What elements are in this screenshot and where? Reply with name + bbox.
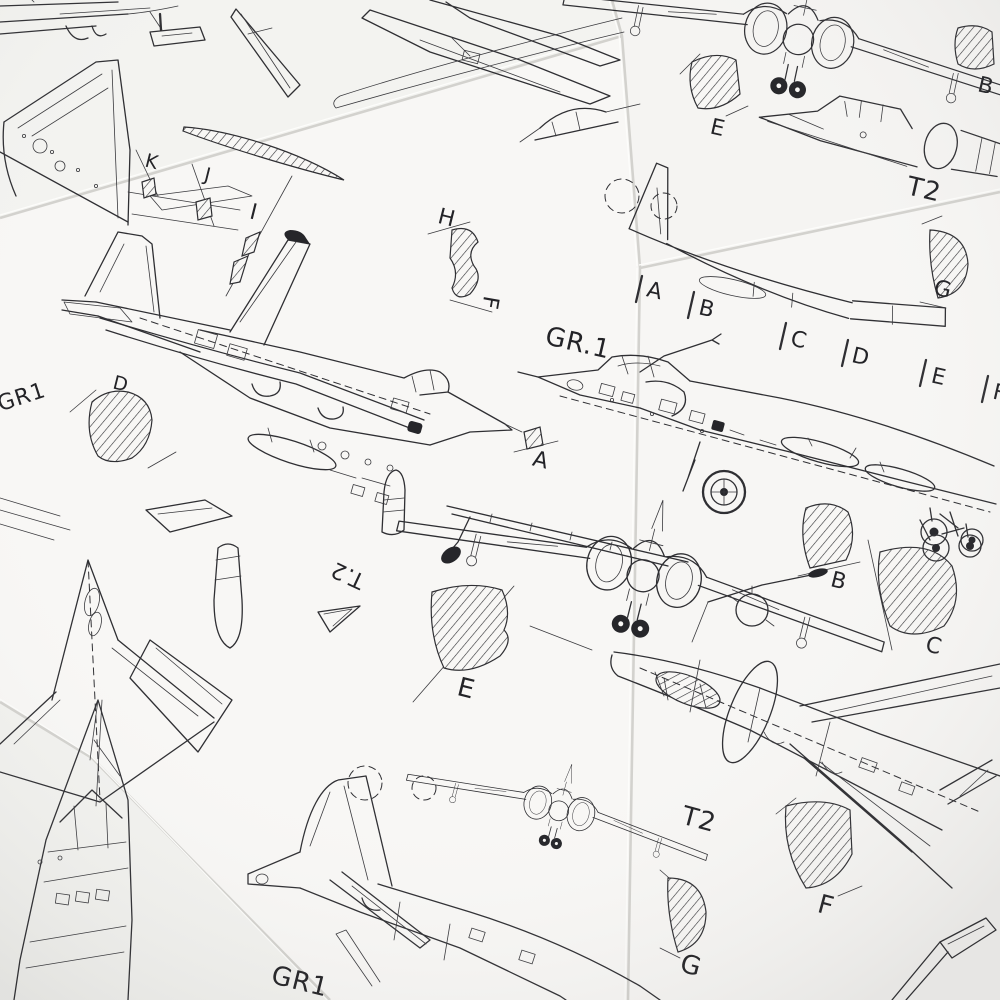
plan-sheets-drawing: K J I H F (0, 0, 1000, 1000)
photo-aircraft-plan-sheets: K J I H F (0, 0, 1000, 1000)
photo-vignette (0, 0, 1000, 1000)
